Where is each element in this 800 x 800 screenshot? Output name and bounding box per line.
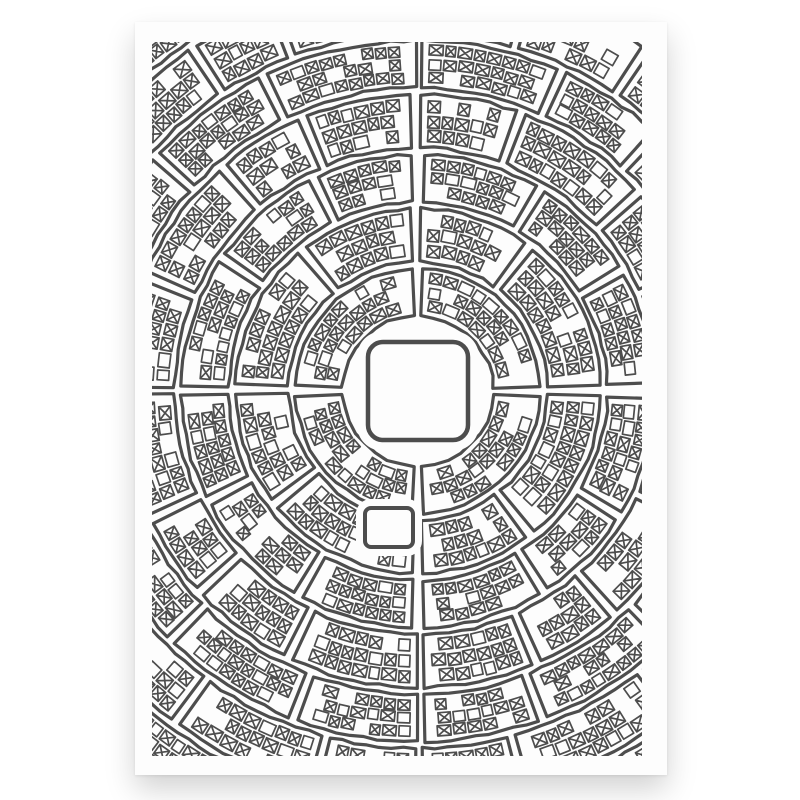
print-area <box>152 42 642 756</box>
poster-paper <box>135 22 667 775</box>
city-map-artwork <box>152 42 642 756</box>
central-plaza <box>368 342 468 440</box>
small-plaza <box>365 508 413 547</box>
scene-background <box>0 0 800 800</box>
